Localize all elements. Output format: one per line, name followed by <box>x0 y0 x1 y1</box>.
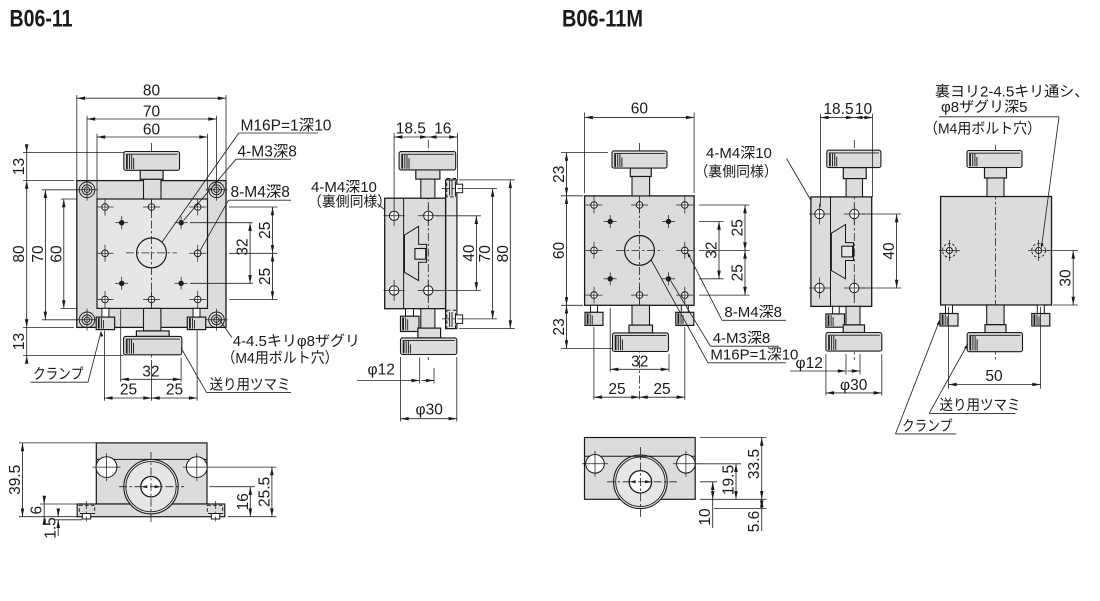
svg-text:8: 8 <box>281 184 290 201</box>
svg-text:10: 10 <box>314 118 332 135</box>
svg-text:4-M4: 4-M4 <box>311 179 345 196</box>
svg-text:8: 8 <box>951 99 959 116</box>
svg-text:25: 25 <box>120 382 137 399</box>
svg-text:4-M4: 4-M4 <box>706 145 740 162</box>
svg-text:M16P=1: M16P=1 <box>710 347 766 364</box>
svg-text:25: 25 <box>257 222 274 239</box>
svg-text:10: 10 <box>782 347 799 364</box>
svg-text:40: 40 <box>881 242 898 260</box>
svg-text:40: 40 <box>461 244 478 262</box>
svg-text:60: 60 <box>551 242 568 260</box>
svg-text:5: 5 <box>1019 99 1027 116</box>
svg-text:30: 30 <box>426 402 444 419</box>
svg-text:19.5: 19.5 <box>721 465 738 495</box>
svg-text:30: 30 <box>1058 269 1075 287</box>
svg-text:10: 10 <box>855 101 873 118</box>
svg-text:60: 60 <box>143 121 161 138</box>
svg-text:16: 16 <box>235 493 252 510</box>
svg-text:80: 80 <box>495 245 512 263</box>
svg-text:M16P=1: M16P=1 <box>241 118 299 135</box>
svg-text:23: 23 <box>551 166 568 183</box>
svg-text:80: 80 <box>11 245 28 263</box>
svg-text:4-4.5: 4-4.5 <box>233 333 267 350</box>
svg-text:2-4.5: 2-4.5 <box>980 84 1014 101</box>
svg-text:1.5: 1.5 <box>43 517 60 539</box>
svg-text:70: 70 <box>30 245 47 263</box>
svg-text:10: 10 <box>360 179 377 196</box>
svg-text:13: 13 <box>11 333 28 350</box>
svg-text:5.6: 5.6 <box>746 511 763 533</box>
svg-text:18.5: 18.5 <box>396 121 426 138</box>
svg-text:4-M3: 4-M3 <box>713 330 747 347</box>
svg-text:60: 60 <box>631 101 649 118</box>
svg-text:13: 13 <box>11 158 28 175</box>
svg-text:39.5: 39.5 <box>7 465 24 495</box>
svg-text:32: 32 <box>142 363 159 380</box>
svg-text:32: 32 <box>704 241 721 258</box>
svg-text:6: 6 <box>29 506 46 515</box>
svg-text:4-M3: 4-M3 <box>238 144 273 161</box>
svg-text:70: 70 <box>477 245 494 263</box>
svg-text:25: 25 <box>166 382 183 399</box>
svg-text:M4: M4 <box>938 121 957 138</box>
svg-text:B06-11M: B06-11M <box>562 6 643 33</box>
svg-text:16: 16 <box>434 121 451 138</box>
svg-text:M4: M4 <box>235 350 254 367</box>
svg-text:12: 12 <box>806 355 823 372</box>
svg-text:10: 10 <box>755 145 772 162</box>
svg-text:B06-11: B06-11 <box>10 6 73 33</box>
svg-text:60: 60 <box>48 245 65 263</box>
svg-text:25: 25 <box>730 219 747 236</box>
svg-text:8-M4: 8-M4 <box>231 184 267 201</box>
svg-text:23: 23 <box>551 318 568 335</box>
svg-text:25: 25 <box>608 381 625 398</box>
svg-text:8: 8 <box>288 144 297 161</box>
svg-text:32: 32 <box>235 238 252 255</box>
svg-text:70: 70 <box>143 103 161 120</box>
svg-text:80: 80 <box>143 83 161 100</box>
svg-text:30: 30 <box>850 377 868 394</box>
svg-text:8-M4: 8-M4 <box>724 304 758 321</box>
svg-text:33.5: 33.5 <box>746 449 763 479</box>
svg-text:12: 12 <box>378 362 395 379</box>
svg-text:10: 10 <box>697 508 714 526</box>
svg-text:50: 50 <box>985 368 1003 385</box>
svg-text:8: 8 <box>762 330 770 347</box>
svg-text:25: 25 <box>730 264 747 281</box>
svg-text:18.5: 18.5 <box>823 101 853 118</box>
svg-text:25.5: 25.5 <box>256 477 273 507</box>
svg-text:8: 8 <box>774 304 782 321</box>
svg-text:32: 32 <box>631 353 648 370</box>
svg-text:25: 25 <box>653 381 670 398</box>
svg-text:8: 8 <box>307 333 315 350</box>
svg-text:25: 25 <box>257 268 274 285</box>
